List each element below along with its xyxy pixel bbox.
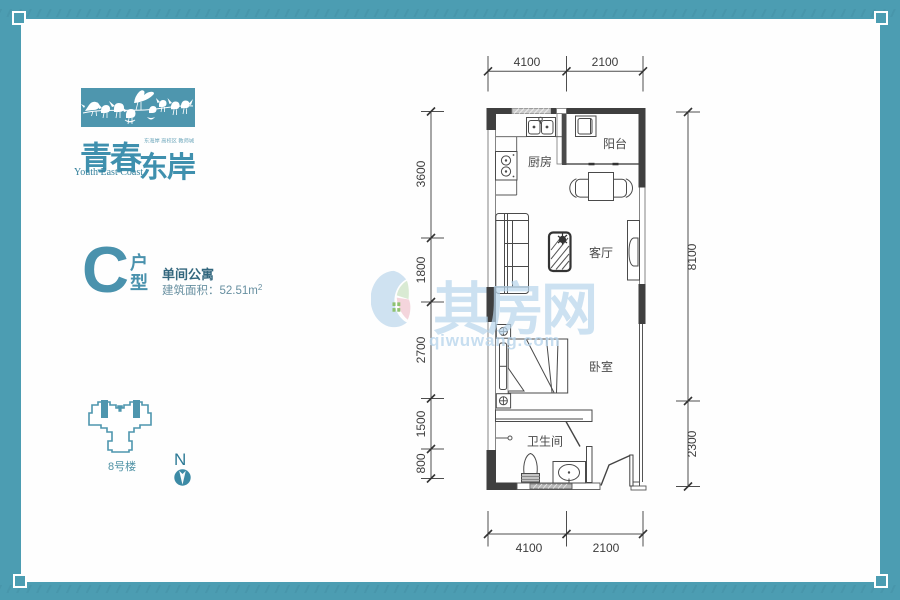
svg-text:卧室: 卧室 xyxy=(589,359,613,374)
svg-text:2700: 2700 xyxy=(414,336,428,363)
svg-text:阳台: 阳台 xyxy=(603,136,627,151)
svg-text:3600: 3600 xyxy=(414,160,428,187)
svg-text:800: 800 xyxy=(414,453,428,473)
svg-text:2100: 2100 xyxy=(593,541,620,555)
svg-text:卫生间: 卫生间 xyxy=(527,435,563,449)
svg-text:客厅: 客厅 xyxy=(589,245,613,260)
svg-text:4100: 4100 xyxy=(516,541,543,555)
svg-text:厨房: 厨房 xyxy=(528,154,552,169)
svg-text:1500: 1500 xyxy=(414,410,428,437)
svg-text:2300: 2300 xyxy=(685,430,699,457)
svg-text:4100: 4100 xyxy=(514,55,541,69)
svg-text:2100: 2100 xyxy=(592,55,619,69)
svg-text:8100: 8100 xyxy=(685,243,699,270)
